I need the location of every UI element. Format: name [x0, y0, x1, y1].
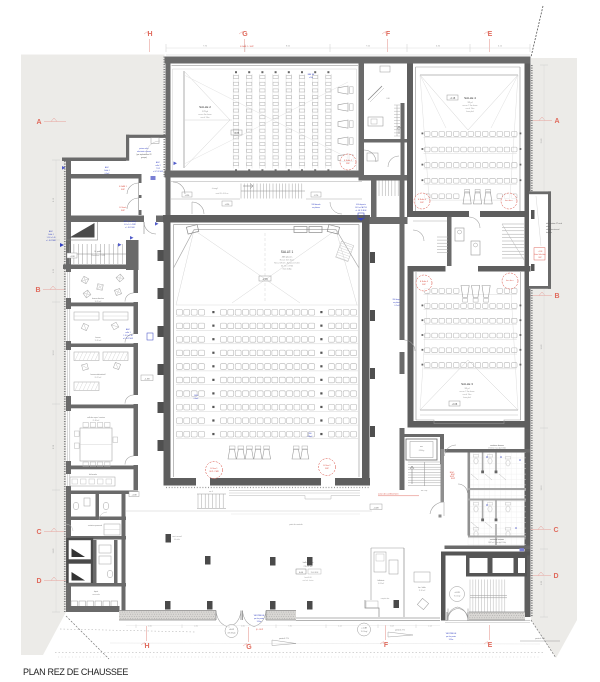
svg-text:4.12: 4.12	[338, 626, 342, 628]
svg-text:20.22 m2: 20.22 m2	[95, 377, 102, 379]
svg-text:ASC: ASC	[105, 166, 110, 169]
svg-text:178 pl: 178 pl	[202, 111, 208, 113]
svg-text:esc. sup: esc. sup	[421, 490, 427, 492]
svg-text:2.14: 2.14	[428, 626, 432, 628]
svg-text:0.8 x 1.4 + PMR: 0.8 x 1.4 + PMR	[124, 224, 136, 226]
svg-text:92 pl: 92 pl	[468, 102, 473, 104]
svg-text:vest. accueil: vest. accueil	[172, 535, 182, 538]
svg-text:F: F	[386, 31, 391, 38]
svg-text:E Sas 1: E Sas 1	[210, 468, 218, 470]
svg-text:76.10ngf: 76.10ngf	[454, 596, 461, 598]
svg-text:A: A	[554, 118, 559, 125]
svg-text:+1.38: +1.38	[538, 251, 543, 253]
svg-text:G: G	[242, 31, 248, 38]
svg-text:bureau administratif: bureau administratif	[91, 373, 106, 376]
svg-text:al : 68.15 NGF: al : 68.15 NGF	[356, 210, 367, 212]
svg-text:12.20: 12.20	[53, 548, 55, 554]
svg-text:real sol : beton: real sol : beton	[302, 579, 313, 582]
svg-text:SUP: SUP	[538, 257, 541, 259]
svg-text:16.20: 16.20	[541, 344, 543, 350]
svg-text:SALLE 1: SALLE 1	[281, 250, 294, 254]
svg-text:7.35: 7.35	[288, 626, 292, 628]
svg-text:70.00 NGF: 70.00 NGF	[311, 572, 319, 574]
svg-text:12.10: 12.10	[541, 485, 543, 491]
svg-text:-2.08: -2.08	[452, 403, 458, 406]
svg-text:salle 1: salle 1	[125, 332, 130, 334]
svg-text:10.18: 10.18	[53, 350, 55, 356]
svg-text:bureau: bureau	[95, 336, 100, 339]
svg-text:4.60: 4.60	[148, 626, 152, 628]
svg-text:SALLE 2: SALLE 2	[199, 105, 211, 109]
svg-text:salle de repos / reunion: salle de repos / reunion	[87, 416, 105, 419]
svg-text:Salle 1: Salle 1	[104, 170, 110, 172]
svg-text:+1.38: +1.38	[131, 495, 137, 497]
svg-text:D: D	[36, 578, 41, 585]
svg-text:260: 260	[309, 433, 312, 435]
svg-text:-2.76: -2.76	[262, 278, 268, 281]
svg-text:E Stock: E Stock	[120, 206, 127, 209]
svg-text:pente 4.7 %: pente 4.7 %	[535, 637, 545, 640]
svg-text:electricite cinema: electricite cinema	[137, 150, 151, 153]
svg-text:630kg: 630kg	[419, 450, 424, 452]
svg-text:selon: selon	[546, 226, 550, 228]
svg-text:0.8m2: 0.8m2	[308, 436, 313, 438]
svg-text:zone de confinement: zone de confinement	[378, 493, 399, 496]
svg-text:E Salle 2: E Salle 2	[344, 160, 353, 162]
svg-text:pente 4.7 %: pente 4.7 %	[279, 637, 289, 640]
svg-text:B: B	[554, 293, 559, 300]
svg-text:al : 69.2 NGF: al : 69.2 NGF	[125, 227, 135, 229]
svg-text:H: H	[147, 31, 152, 38]
svg-text:VESTIBULE: VESTIBULE	[446, 633, 457, 635]
svg-text:C: C	[553, 527, 558, 534]
svg-text:kitchenette: kitchenette	[89, 473, 97, 476]
svg-text:esc 4: esc 4	[209, 491, 213, 493]
svg-text:92 pl: 92 pl	[465, 388, 470, 390]
svg-text:haut 4.00: haut 4.00	[304, 576, 311, 579]
svg-text:Ecran 15m base: Ecran 15m base	[280, 260, 295, 262]
svg-text:A: A	[36, 119, 41, 126]
svg-text:sanitaires hommes: sanitaires hommes	[490, 538, 504, 541]
svg-text:0.30: 0.30	[386, 98, 389, 100]
svg-text:MAT SE: MAT SE	[308, 73, 315, 76]
svg-text:Son dolby: Son dolby	[283, 269, 292, 271]
svg-text:point de controle: point de controle	[289, 523, 302, 526]
svg-text:depot: depot	[94, 590, 99, 593]
svg-text:SALLE 4: SALLE 4	[464, 96, 476, 100]
svg-text:15.20: 15.20	[541, 138, 543, 144]
svg-text:ecran 7.3m base: ecran 7.3m base	[460, 391, 476, 393]
svg-text:E: E	[488, 642, 493, 649]
svg-text:10.35m2: 10.35m2	[378, 583, 384, 585]
svg-text:3.30m: 3.30m	[449, 639, 454, 641]
svg-text:Recul 19.6m - Avancee 6.5m: Recul 19.6m - Avancee 6.5m	[274, 262, 300, 265]
svg-text:D: D	[553, 573, 558, 580]
svg-text:ASC: ASC	[156, 161, 161, 164]
svg-text:al : 69.2 NGF: al : 69.2 NGF	[46, 240, 56, 242]
svg-text:ASC: ASC	[49, 230, 54, 233]
svg-text:(pre implantation CF: (pre implantation CF	[136, 153, 151, 156]
svg-text:B: B	[35, 287, 40, 294]
svg-text:v.2kv: v.2kv	[309, 77, 313, 79]
svg-text:+1.38: +1.38	[69, 256, 75, 258]
svg-text:SLS et CA PV3: SLS et CA PV3	[355, 206, 367, 209]
svg-text:4.60: 4.60	[241, 626, 245, 628]
svg-text:7.5 l2: 7.5 l2	[156, 168, 160, 170]
svg-text:0.2 m2: 0.2 m2	[394, 305, 399, 307]
svg-text:E SAS 2 - SUP: E SAS 2 - SUP	[240, 45, 254, 48]
svg-text:1.10 l x 1.40: 1.10 l x 1.40	[47, 237, 56, 239]
svg-text:2.26: 2.26	[194, 626, 198, 628]
svg-text:recul 11m: recul 11m	[466, 108, 475, 110]
svg-text:15.35 m2: 15.35 m2	[95, 340, 102, 342]
svg-text:bureau direction: bureau direction	[92, 297, 104, 300]
svg-text:400 departs: 400 departs	[356, 203, 366, 206]
svg-text:faux plaf: faux plaf	[463, 397, 471, 399]
svg-text:SUP: SUP	[451, 478, 456, 480]
svg-text:17.20 m2 - faux plaf 2.50m: 17.20 m2 - faux plaf 2.50m	[488, 448, 507, 450]
svg-text:3.30m: 3.30m	[257, 621, 262, 623]
svg-text:34.71 x .8765: 34.71 x .8765	[281, 266, 294, 268]
svg-text:(0 - SUP: (0 - SUP	[256, 629, 264, 631]
svg-text:76.10ngf: 76.10ngf	[361, 631, 368, 633]
svg-text:E Sas 2: E Sas 2	[323, 465, 331, 467]
svg-text:al : 69.2 NGF: al : 69.2 NGF	[123, 338, 133, 340]
svg-text:14 marches 17.5/28: 14 marches 17.5/28	[91, 255, 105, 257]
svg-text:E: E	[488, 31, 493, 38]
svg-text:recul 11m: recul 11m	[463, 394, 472, 396]
svg-text:E Salle 3: E Salle 3	[420, 281, 429, 283]
svg-text:billetterie: billetterie	[378, 579, 385, 582]
svg-text:1.10 l x 1.40: 1.10 l x 1.40	[123, 335, 132, 337]
svg-text:pente 4.7 %: pente 4.7 %	[395, 629, 405, 632]
svg-text:Iss. de s.: Iss. de s.	[506, 280, 514, 282]
svg-text:E SAS 1: E SAS 1	[119, 185, 127, 188]
svg-text:+0.28: +0.28	[454, 592, 460, 594]
svg-text:235.05 m2: 235.05 m2	[304, 566, 313, 568]
svg-text:11.30 m2: 11.30 m2	[419, 590, 426, 592]
svg-text:0.4m2: 0.4m2	[194, 398, 199, 400]
svg-text:0.5m2: 0.5m2	[105, 173, 110, 175]
svg-text:recul 13m: recul 13m	[201, 117, 210, 119]
svg-text:E Salle 4: E Salle 4	[418, 199, 427, 201]
svg-text:16.25 m2: 16.25 m2	[95, 301, 102, 303]
svg-text:Salle 1: Salle 1	[48, 234, 54, 236]
svg-text:G: G	[246, 644, 252, 651]
svg-text:-4.26: -4.26	[234, 132, 240, 135]
svg-text:(69.38ngf): (69.38ngf)	[228, 633, 236, 635]
svg-text:ASC (non defini): ASC (non defini)	[124, 220, 137, 223]
svg-text:al. 67.35 NGF: al. 67.35 NGF	[153, 171, 163, 173]
svg-text:-4.18: -4.18	[450, 97, 456, 100]
svg-text:21.88 m2: 21.88 m2	[93, 420, 100, 422]
svg-text:ecran 9m base: ecran 9m base	[198, 114, 212, 116]
svg-text:H: H	[144, 643, 149, 650]
svg-text:sanitaires femmes: sanitaires femmes	[490, 444, 504, 447]
svg-text:-4 rang 1: -4 rang 1	[212, 188, 218, 190]
svg-text:SALLE 3: SALLE 3	[461, 382, 473, 386]
svg-text:ASC: ASC	[126, 328, 131, 331]
svg-text:16.87 m2 - faux plaf 2.50m: 16.87 m2 - faux plaf 2.50m	[488, 542, 507, 544]
svg-text:bar / table: bar / table	[418, 586, 426, 589]
svg-text:groupe): groupe)	[141, 156, 147, 159]
svg-text:SUP - PMR: SUP - PMR	[209, 471, 219, 473]
svg-text:6.08: 6.08	[390, 626, 394, 628]
svg-text:F: F	[384, 642, 389, 649]
svg-text:asc: asc	[420, 446, 423, 448]
svg-text:-1.38: -1.38	[145, 379, 151, 381]
svg-text:ecran 7.3m base: ecran 7.3m base	[463, 105, 479, 107]
svg-text:SSI dissole: SSI dissole	[312, 204, 321, 206]
svg-text:C: C	[36, 529, 41, 536]
svg-text:en plateau: en plateau	[312, 206, 320, 209]
svg-text:Iss. de s.: Iss. de s.	[505, 200, 513, 202]
svg-text:salle 2: salle 2	[155, 165, 160, 167]
svg-text:466 places: 466 places	[282, 257, 293, 259]
svg-text:PLAN REZ DE CHAUSSEE: PLAN REZ DE CHAUSSEE	[23, 667, 128, 677]
svg-text:E. pub 1: E. pub 1	[95, 251, 102, 253]
svg-text:faux plaf: faux plaf	[466, 111, 474, 113]
svg-text:commande: commande	[92, 594, 100, 596]
svg-text:+1.38: +1.38	[361, 628, 367, 630]
svg-text:VESTIBULE: VESTIBULE	[254, 615, 265, 617]
svg-text:ESC: ESC	[451, 474, 456, 476]
svg-text:-0.08: -0.08	[374, 508, 380, 510]
svg-text:-0.02: -0.02	[229, 629, 235, 631]
